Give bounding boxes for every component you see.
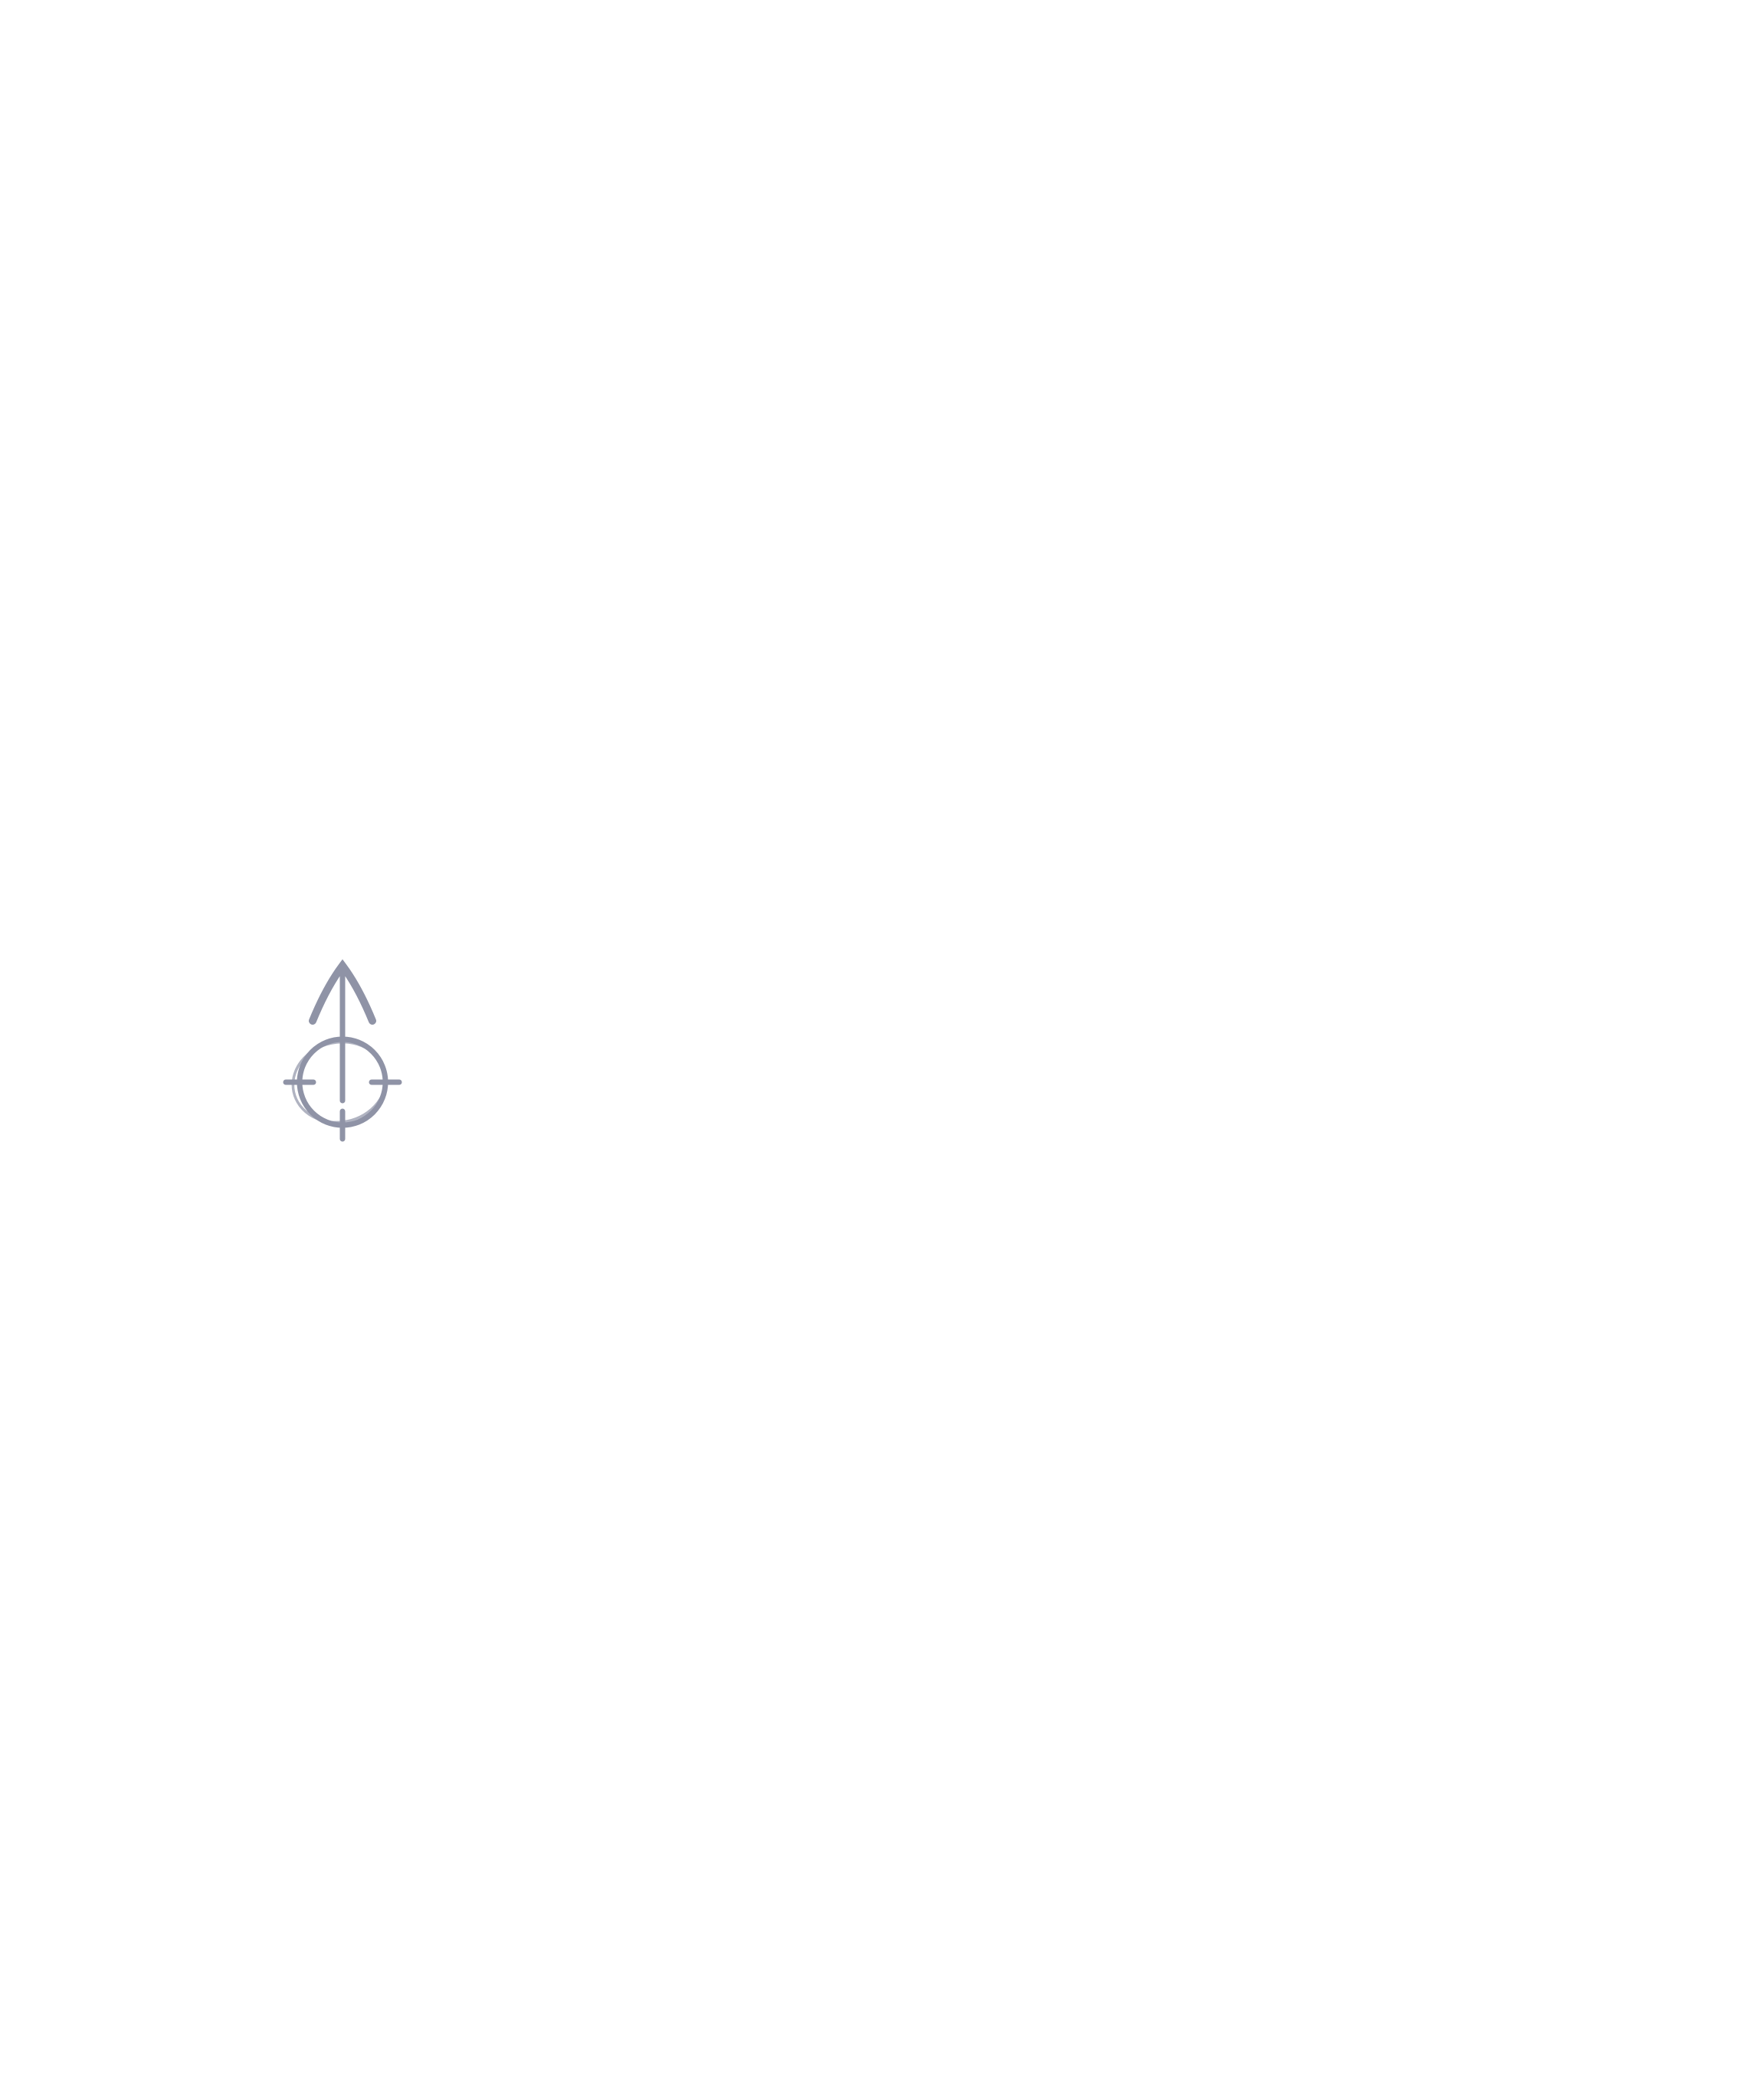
site-plan-canvas: [0, 0, 1747, 2100]
compass: [286, 966, 399, 1139]
development-site-plan: [0, 0, 1747, 2100]
compass-arrow-icon: [286, 966, 399, 1139]
